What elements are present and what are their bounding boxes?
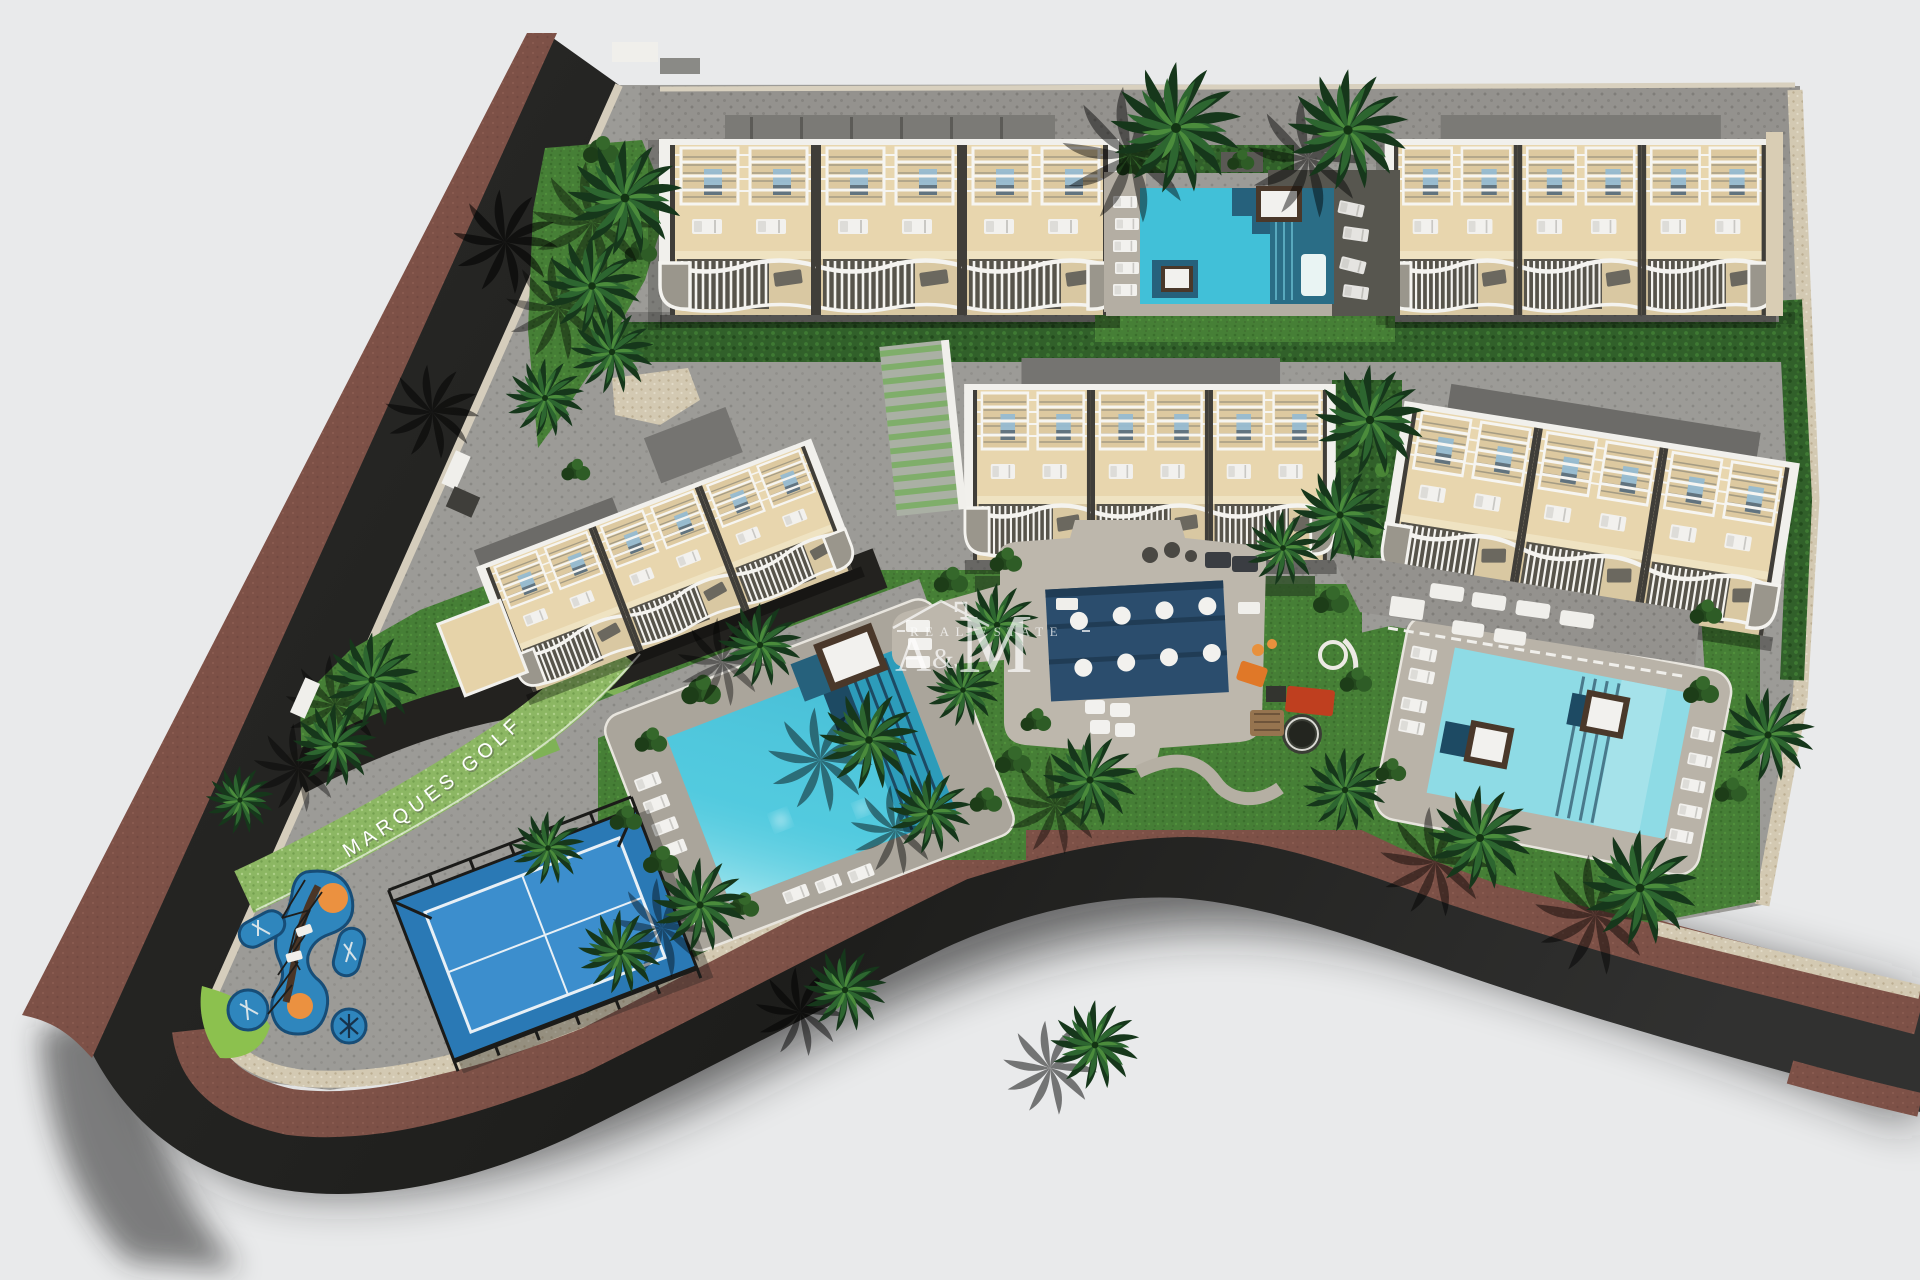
svg-text:&: &: [932, 644, 954, 675]
svg-text:A: A: [895, 626, 931, 682]
svg-text:M: M: [958, 598, 1033, 691]
